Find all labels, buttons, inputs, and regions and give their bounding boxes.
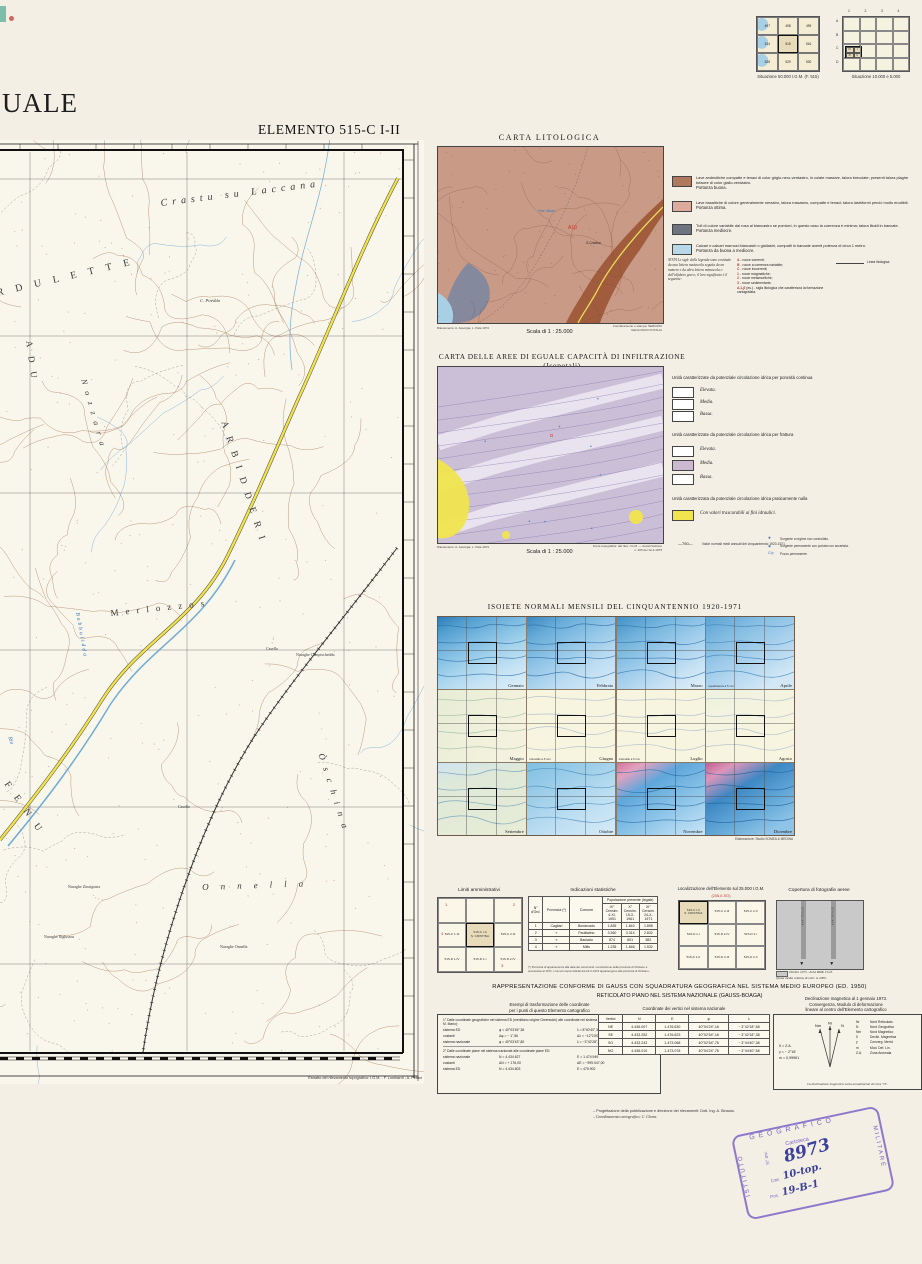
situazione10-cell: [876, 44, 893, 58]
lito-legend-text: Lave andesitiche compatte e tenaci di co…: [696, 175, 918, 191]
month-label: Maggio: [510, 756, 524, 761]
declinazione-heading: Declinazione magnetica al 1 gennaio 1973…: [770, 996, 922, 1013]
copertura-caption1: Ottobre 1973 - Zeiss RMK 15/23.: [789, 970, 833, 974]
main-topographic-map: Crastu su Laccana RDULETTE C. Piredda AD…: [0, 140, 424, 1084]
situazione10-cell: [860, 44, 877, 58]
infil-legend-label: Elevata.: [700, 388, 716, 393]
infil-group-heading: Unità caratterizzate da potenziale circo…: [672, 375, 917, 380]
month-label: Marzo: [691, 683, 703, 688]
isoieta-line-symbol: —750—: [678, 541, 693, 546]
element-outline: [647, 715, 676, 737]
situazione50-cell: 498: [778, 17, 799, 35]
infil-legend-label: Con valori trascurabili ai fini idraulic…: [700, 511, 776, 516]
isoiete-panel-maggio: Maggio: [438, 690, 526, 762]
situazione50-cell: 528: [757, 53, 778, 71]
isoiete-panel-marzo: Marzo: [617, 617, 705, 689]
statistiche-title: Indicazioni statistiche: [528, 888, 658, 893]
sheet-title-fragment: UALE: [2, 88, 78, 119]
localizzazione-title: Localizzazione dell'Elemento sul 25.000 …: [676, 886, 766, 891]
situazione10-cell: [893, 58, 910, 72]
declinazione-values: δ = Z.A.γ = − 2°18'm = 0,99961: [779, 1043, 799, 1061]
element-outline: [736, 642, 765, 664]
linea-litologica-symbol: [836, 263, 864, 264]
lito-label-a1b: A1β: [568, 225, 577, 231]
infil-symbol-text: Pozzo permanente.: [780, 552, 808, 556]
situazione-50000-caption: Situazione 50.000 I.G.M. (F. 515): [748, 74, 828, 79]
lito-legend-swatch: [672, 201, 692, 212]
scanned-map-sheet: 497498499514515516528529530 Situazione 5…: [0, 0, 922, 1264]
gauss-header-1: RAPPRESENTAZIONE CONFORME DI GAUSS CON S…: [437, 984, 922, 990]
photo-strip-2: STRISCIATA: [831, 901, 836, 959]
situazione10-cell: [843, 58, 860, 72]
situazione10-cell: [843, 31, 860, 45]
situazione10-cell: [860, 31, 877, 45]
situazione10-cell: [876, 31, 893, 45]
month-label: Agosto: [779, 756, 792, 761]
infil-symbol-glyph: ✚: [768, 536, 771, 540]
isoiete-panel-gennaio: Gennaio: [438, 617, 526, 689]
isoiete-panel-agosto: Agosto: [706, 690, 794, 762]
element-outline: [468, 642, 497, 664]
vertici-heading: Coordinate dei vertici nel sistema nazio…: [598, 1006, 770, 1012]
situazione10-cell: [893, 17, 910, 31]
infil-legend-swatch: [672, 411, 694, 422]
infil-legend-label: Media.: [700, 461, 713, 466]
north-arrows-diagram: Nm Nr N: [812, 1021, 848, 1071]
situazione10-cell: IVIIIIII: [843, 44, 860, 58]
situazione50-cell: 515: [778, 35, 799, 53]
isoiete-panel-luglio: Lugliointervallo a 5 mm: [617, 690, 705, 762]
situazione50-cell: 529: [778, 53, 799, 71]
localizzazione-subtitle: (206-II-SO): [676, 894, 766, 898]
lito-credit-right: Coordinamento e stampa: SERVIZIO GEOLOGI…: [596, 324, 662, 332]
isoiete-panel-settembre: Settembre: [438, 763, 526, 835]
carta-litologica-map: A1β S.Cristina Funt. Mauru: [437, 146, 664, 324]
situazione10-cell: [893, 31, 910, 45]
infil-legend-swatch: [672, 399, 694, 410]
month-label: Settembre: [505, 829, 524, 834]
situazione50-cell: 497: [757, 17, 778, 35]
situazione50-cell: 514: [757, 35, 778, 53]
library-stamp: GEOGRAFICO ISTITUTO MILITARE Cartoteca N…: [731, 1105, 896, 1220]
element-outline: [736, 715, 765, 737]
isoiete-panel-ottobre: Ottobre: [527, 763, 615, 835]
month-label: Luglio: [690, 756, 702, 761]
lito-legend-text: Tufi di colore variabile dal rosa al bia…: [696, 223, 918, 234]
map-label-casello: Casello: [178, 804, 190, 809]
element-outline: [557, 715, 586, 737]
vertici-table: VerticiNEφλ NE4.436.0071.476.63040°04'24…: [598, 1014, 770, 1055]
statistiche-table: N° d'Ord. Provincia (*) Comune Popolazio…: [528, 896, 658, 951]
infil-symbol-glyph: ◉: [768, 544, 771, 548]
lito-nota-items: A - rocce coerenti;B - rocce a coerenza …: [737, 258, 829, 295]
situazione10-cell: [876, 17, 893, 31]
situazione-10000-grid: IVIIIIII: [842, 16, 910, 72]
limiti-title: Limiti amministrativi: [437, 888, 521, 893]
infil-legend-swatch: [672, 510, 694, 521]
month-label: Febbraio: [597, 683, 613, 688]
localizzazione-grid: 515-C I-IIS. CRISTINA 515-C 2-III 515-C …: [678, 900, 766, 970]
situazione10-cell: [860, 58, 877, 72]
carta-infiltrazione-map: α: [437, 366, 664, 544]
situazione50-cell: 530: [798, 53, 819, 71]
map-label-nuraghe-ilighozzu: Nuraghe Ilighozzu: [44, 934, 74, 939]
scan-mark-red: [9, 16, 14, 21]
linea-litologica-label: Linea litologica: [867, 260, 889, 264]
copertura-title: Copertura di fotografie aeree: [776, 888, 862, 893]
situazione-50000-grid: 497498499514515516528529530: [756, 16, 820, 72]
situazione10-cell: [843, 17, 860, 31]
infil-credit-right: Fonte topografica: dal rilev. I.G.M. — A…: [590, 544, 662, 552]
isoiete-panel-novembre: Novembre: [617, 763, 705, 835]
infil-legend-swatch: [672, 474, 694, 485]
footnote-2: – Coordinamento cartografico: C. Gloria.: [593, 1115, 657, 1119]
month-label: Giugno: [599, 756, 613, 761]
map-label-casella: Casella: [266, 646, 278, 651]
isoiete-grid: GennaioFebbraioMarzoAprileequidistanza a…: [437, 616, 795, 836]
infil-legend-label: Media.: [700, 400, 713, 405]
limiti-grid: 1 2 4515-C 1-III 515-C I-IIS. CRISTINA 5…: [437, 897, 523, 973]
infil-symbol-glyph: C/p: [768, 551, 774, 555]
lito-label-funt-mauru: Funt. Mauru: [538, 209, 555, 213]
map-label-nuraghe-campischeddu: Nuraghe Campischeddu: [296, 652, 335, 657]
infil-label-alpha: α: [550, 433, 553, 439]
lito-label-scristina: S.Cristina: [586, 241, 601, 245]
situazione50-cell: 516: [798, 35, 819, 53]
isoiete-panel-dicembre: Dicembre: [706, 763, 794, 835]
declinazione-legend: NrNord ReticolatoNNord GeograficoNmNord …: [856, 1020, 896, 1056]
infil-symbol-text: Sorgente permanente con portata non acce…: [780, 544, 849, 548]
infil-symbol-text: Sorgente a regime non controllato.: [780, 537, 829, 541]
svg-text:Nm: Nm: [815, 1023, 822, 1028]
month-label: Gennaio: [508, 683, 524, 688]
statistiche-footnote: (*) Provincia di appartenenza alla data …: [528, 966, 658, 973]
isoiete-credit: Elaborazione: Studio SOMEA & MEDINA: [640, 837, 793, 841]
lito-legend-text: Lave basaltiche di colore generalmente n…: [696, 200, 918, 211]
scan-mark-green: [0, 6, 6, 22]
infil-legend-label: Bassa.: [700, 412, 713, 417]
lito-legend-swatch: [672, 244, 692, 255]
lito-legend-text: Calcari e calcari marnosi biancastri o g…: [696, 243, 918, 254]
element-outline: [468, 788, 497, 810]
month-label: Aprile: [780, 683, 792, 688]
infil-legend-label: Bassa.: [700, 475, 713, 480]
map-label-nuraghe-onnella: Nuraghe Onnella: [220, 944, 247, 949]
map-label-nuraghe-zinzigonia: Nuraghe Zinzigonia: [68, 884, 100, 889]
footnote-1: – Progettazione della pubblicazione e di…: [593, 1109, 735, 1113]
infil-group-heading: Unità caratterizzate da potenziale circo…: [672, 432, 917, 437]
lito-legend-swatch: [672, 224, 692, 235]
isoiete-title: ISOIETE NORMALI MENSILI DEL CINQUANTENNI…: [437, 603, 793, 611]
element-outline: [557, 642, 586, 664]
photo-strip-1: STRISCIATA: [801, 901, 806, 959]
month-label: Ottobre: [599, 829, 613, 834]
infil-legend-swatch: [672, 387, 694, 398]
copertura-box: STRISCIATA STRISCIATA: [776, 900, 864, 970]
isoiete-panel-aprile: Aprileequidistanza a 5 mm: [706, 617, 794, 689]
element-outline: [647, 642, 676, 664]
isoiete-panel-febbraio: Febbraio: [527, 617, 615, 689]
svg-text:Nr: Nr: [828, 1021, 833, 1026]
infil-group-heading: Unità caratterizzata da potenziale circo…: [672, 496, 917, 501]
declinazione-box: δ = Z.A.γ = − 2°18'm = 0,99961 Nm Nr N N…: [773, 1014, 922, 1090]
infil-legend-label: Elevata.: [700, 447, 716, 452]
month-label: Dicembre: [774, 829, 792, 834]
infil-legend-swatch: [672, 460, 694, 471]
isoiete-panel-giugno: Giugnointervallo a 5 mm: [527, 690, 615, 762]
situazione-10000-caption: Situazione 10.000 e 5.000: [834, 74, 918, 79]
element-label: ELEMENTO 515-C I-II: [258, 122, 400, 138]
situazione10-cell: [876, 58, 893, 72]
copertura-caption2: Quota media relativa di volo: m 2000.: [776, 976, 827, 980]
svg-text:N: N: [841, 1023, 844, 1028]
situazione10-cell: [860, 17, 877, 31]
lito-nota-intro: NOTA Le sigle della legenda sono costitu…: [668, 258, 732, 282]
infil-legend-swatch: [672, 446, 694, 457]
main-map-credit: Estratto del rilevamento topografico: I.…: [150, 1076, 422, 1080]
element-outline: [468, 715, 497, 737]
map-label-c-piredda: C. Piredda: [200, 298, 220, 303]
lito-legend-swatch: [672, 176, 692, 187]
month-label: Novembre: [683, 829, 702, 834]
element-outline: [736, 788, 765, 810]
element-outline: [647, 788, 676, 810]
situazione10-cell: [893, 44, 910, 58]
declinazione-footnote: La declinazione magnetica varia annualme…: [774, 1082, 921, 1086]
carta-litologica-title: CARTA LITOLOGICA: [437, 133, 662, 142]
element-outline: [557, 788, 586, 810]
situazione50-cell: 499: [798, 17, 819, 35]
